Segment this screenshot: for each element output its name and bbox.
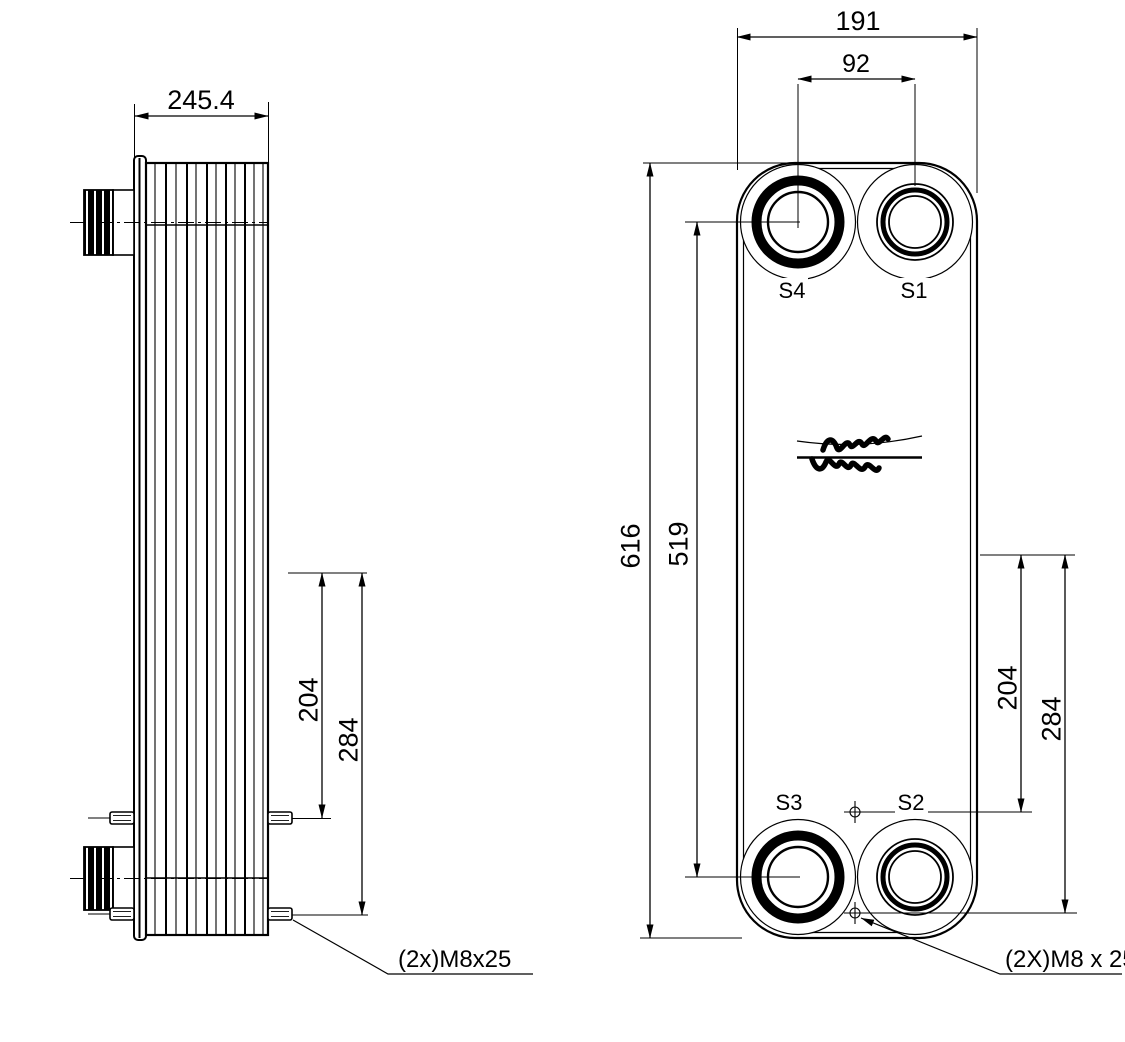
port-s4-label: S4 xyxy=(779,278,806,303)
port-s2 xyxy=(858,820,973,935)
port-s3-label: S3 xyxy=(776,790,803,815)
front-port-spacing-dim-label: 92 xyxy=(842,50,870,78)
side-stud-note: (2x)M8x25 xyxy=(293,920,533,974)
stud-front-upper xyxy=(268,812,292,824)
stud-back-upper xyxy=(110,812,134,824)
side-stud-dimensions: 204 284 xyxy=(288,573,368,915)
stud-front-lower xyxy=(268,908,292,920)
heat-exchanger-drawing: 245.4 xyxy=(0,0,1125,1042)
port-s2-label: S2 xyxy=(898,790,925,815)
front-height-dim-label: 616 xyxy=(615,523,645,568)
plate-pack xyxy=(146,163,268,935)
side-stud-note-label: (2x)M8x25 xyxy=(398,946,511,973)
front-view: 191 92 616 519 204 284 xyxy=(615,6,1125,974)
stud-back-lower xyxy=(110,908,134,920)
end-plate xyxy=(134,156,146,940)
front-body xyxy=(737,163,977,938)
front-stud-note-label: (2X)M8 x 25 xyxy=(1005,946,1125,973)
port-s1-label: S1 xyxy=(901,278,928,303)
front-lower-stud-dim-label: 284 xyxy=(1036,696,1066,741)
side-depth-dimension: 245.4 xyxy=(135,85,269,163)
side-lower-stud-dim-label: 284 xyxy=(333,717,363,762)
front-upper-stud-dim-label: 204 xyxy=(992,665,1022,710)
drawing-svg: 245.4 xyxy=(0,0,1125,1042)
side-upper-stud-dim-label: 204 xyxy=(293,677,323,722)
side-depth-dim-label: 245.4 xyxy=(167,85,235,115)
front-width-dim-label: 191 xyxy=(835,6,880,36)
front-port-vertical-dim-label: 519 xyxy=(663,521,693,566)
side-view: 245.4 xyxy=(70,85,533,974)
